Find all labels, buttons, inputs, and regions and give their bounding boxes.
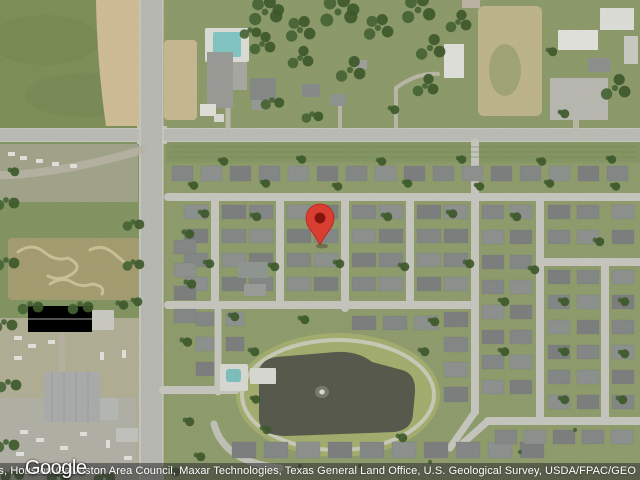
image-grain [0, 0, 640, 480]
map-viewport[interactable]: ous, Houston-Galveston Area Council, Max… [0, 0, 640, 480]
satellite-imagery[interactable] [0, 0, 640, 480]
google-logo[interactable]: Google [25, 457, 87, 480]
attribution-text: ous, Houston-Galveston Area Council, Max… [0, 463, 640, 480]
attribution-bar: ous, Houston-Galveston Area Council, Max… [0, 463, 640, 480]
